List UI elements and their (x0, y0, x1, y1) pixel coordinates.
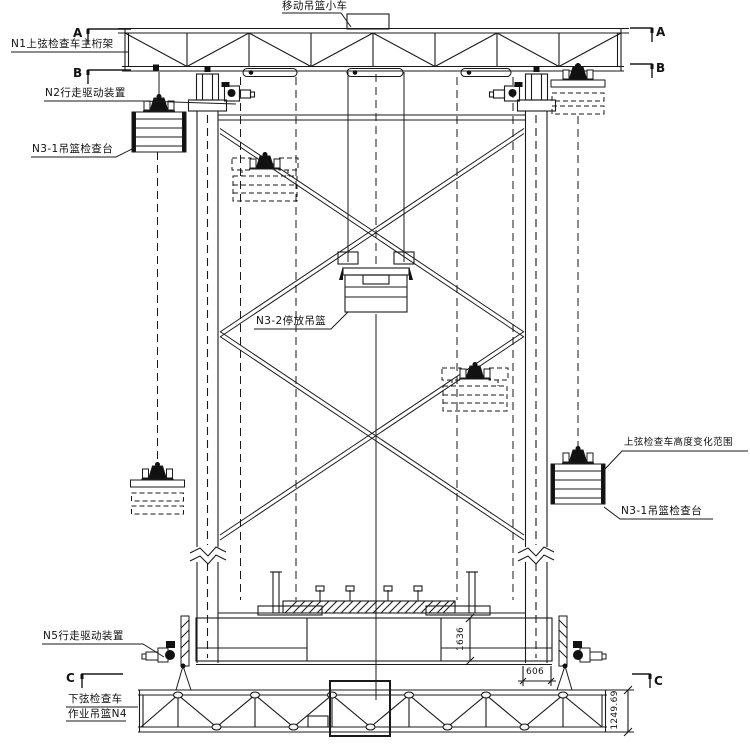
deck-studs (316, 586, 422, 601)
platform-box (196, 618, 552, 661)
dim-1249: 1249.69 (610, 686, 620, 734)
right-column (518, 111, 554, 663)
deck-slab (283, 601, 455, 613)
section-mark-symbols (81, 28, 654, 688)
n2-drive-unit-right (490, 66, 556, 111)
hanger-lines (158, 71, 579, 700)
section-letter-b-left: B (73, 66, 82, 80)
label-moving-trolley: 移动吊篮小车 (282, 1, 347, 13)
bottom-chord-truss (138, 681, 607, 736)
n5-drive-left (142, 616, 191, 690)
label-lower-vehicle-line1: 下弦检查车 (68, 694, 123, 706)
lower-trolley-box (330, 681, 390, 736)
section-letter-c-left: C (66, 671, 75, 685)
dim-1636-lines (466, 614, 474, 665)
break-symbol (518, 547, 554, 556)
label-n5-drive: N5行走驱动装置 (43, 631, 124, 643)
lower-platform (196, 572, 552, 665)
n3-1-basket-upper-left (132, 94, 186, 152)
cross-bracing (220, 129, 524, 541)
label-leader-lines (11, 13, 748, 721)
dim-1636: 1636 (456, 619, 466, 659)
label-n1-main-truss: N1上弦检查车主桁架 (11, 39, 114, 51)
column-tie-beam (218, 115, 526, 120)
engineering-drawing-sheet: 移动吊篮小车 N1上弦检查车主桁架 N2行走驱动装置 N3-1吊篮检查台 N3-… (0, 0, 750, 750)
basket-dashed-position-lower (442, 362, 508, 411)
section-letter-a-right: A (656, 25, 665, 39)
basket-dashed-position-upper (232, 152, 298, 201)
section-letter-c-right: C (654, 674, 663, 688)
dim-606: 606 (526, 667, 544, 677)
top-chord-truss (118, 14, 629, 77)
left-column (190, 111, 226, 663)
n5-drive-right (557, 616, 606, 690)
break-symbol (190, 547, 226, 556)
label-n2-drive: N2行走驱动装置 (45, 88, 126, 100)
label-n3-1-right: N3-1吊篮检查台 (621, 506, 702, 518)
label-n3-1-left: N3-1吊篮检查台 (32, 144, 113, 156)
n3-1-basket-lower-left (131, 462, 185, 514)
label-n3-2-parked-basket: N3-2停放吊篮 (256, 316, 326, 328)
n2-drive-unit-left (189, 66, 255, 111)
moving-trolley-box (347, 14, 389, 29)
label-height-range: 上弦检查车高度变化范围 (624, 438, 733, 448)
section-letter-b-right: B (656, 61, 665, 75)
section-letter-a-left: A (73, 26, 82, 40)
label-lower-vehicle-line2: 作业吊篮N4 (68, 709, 127, 721)
n3-1-basket-lower-right (551, 446, 605, 504)
